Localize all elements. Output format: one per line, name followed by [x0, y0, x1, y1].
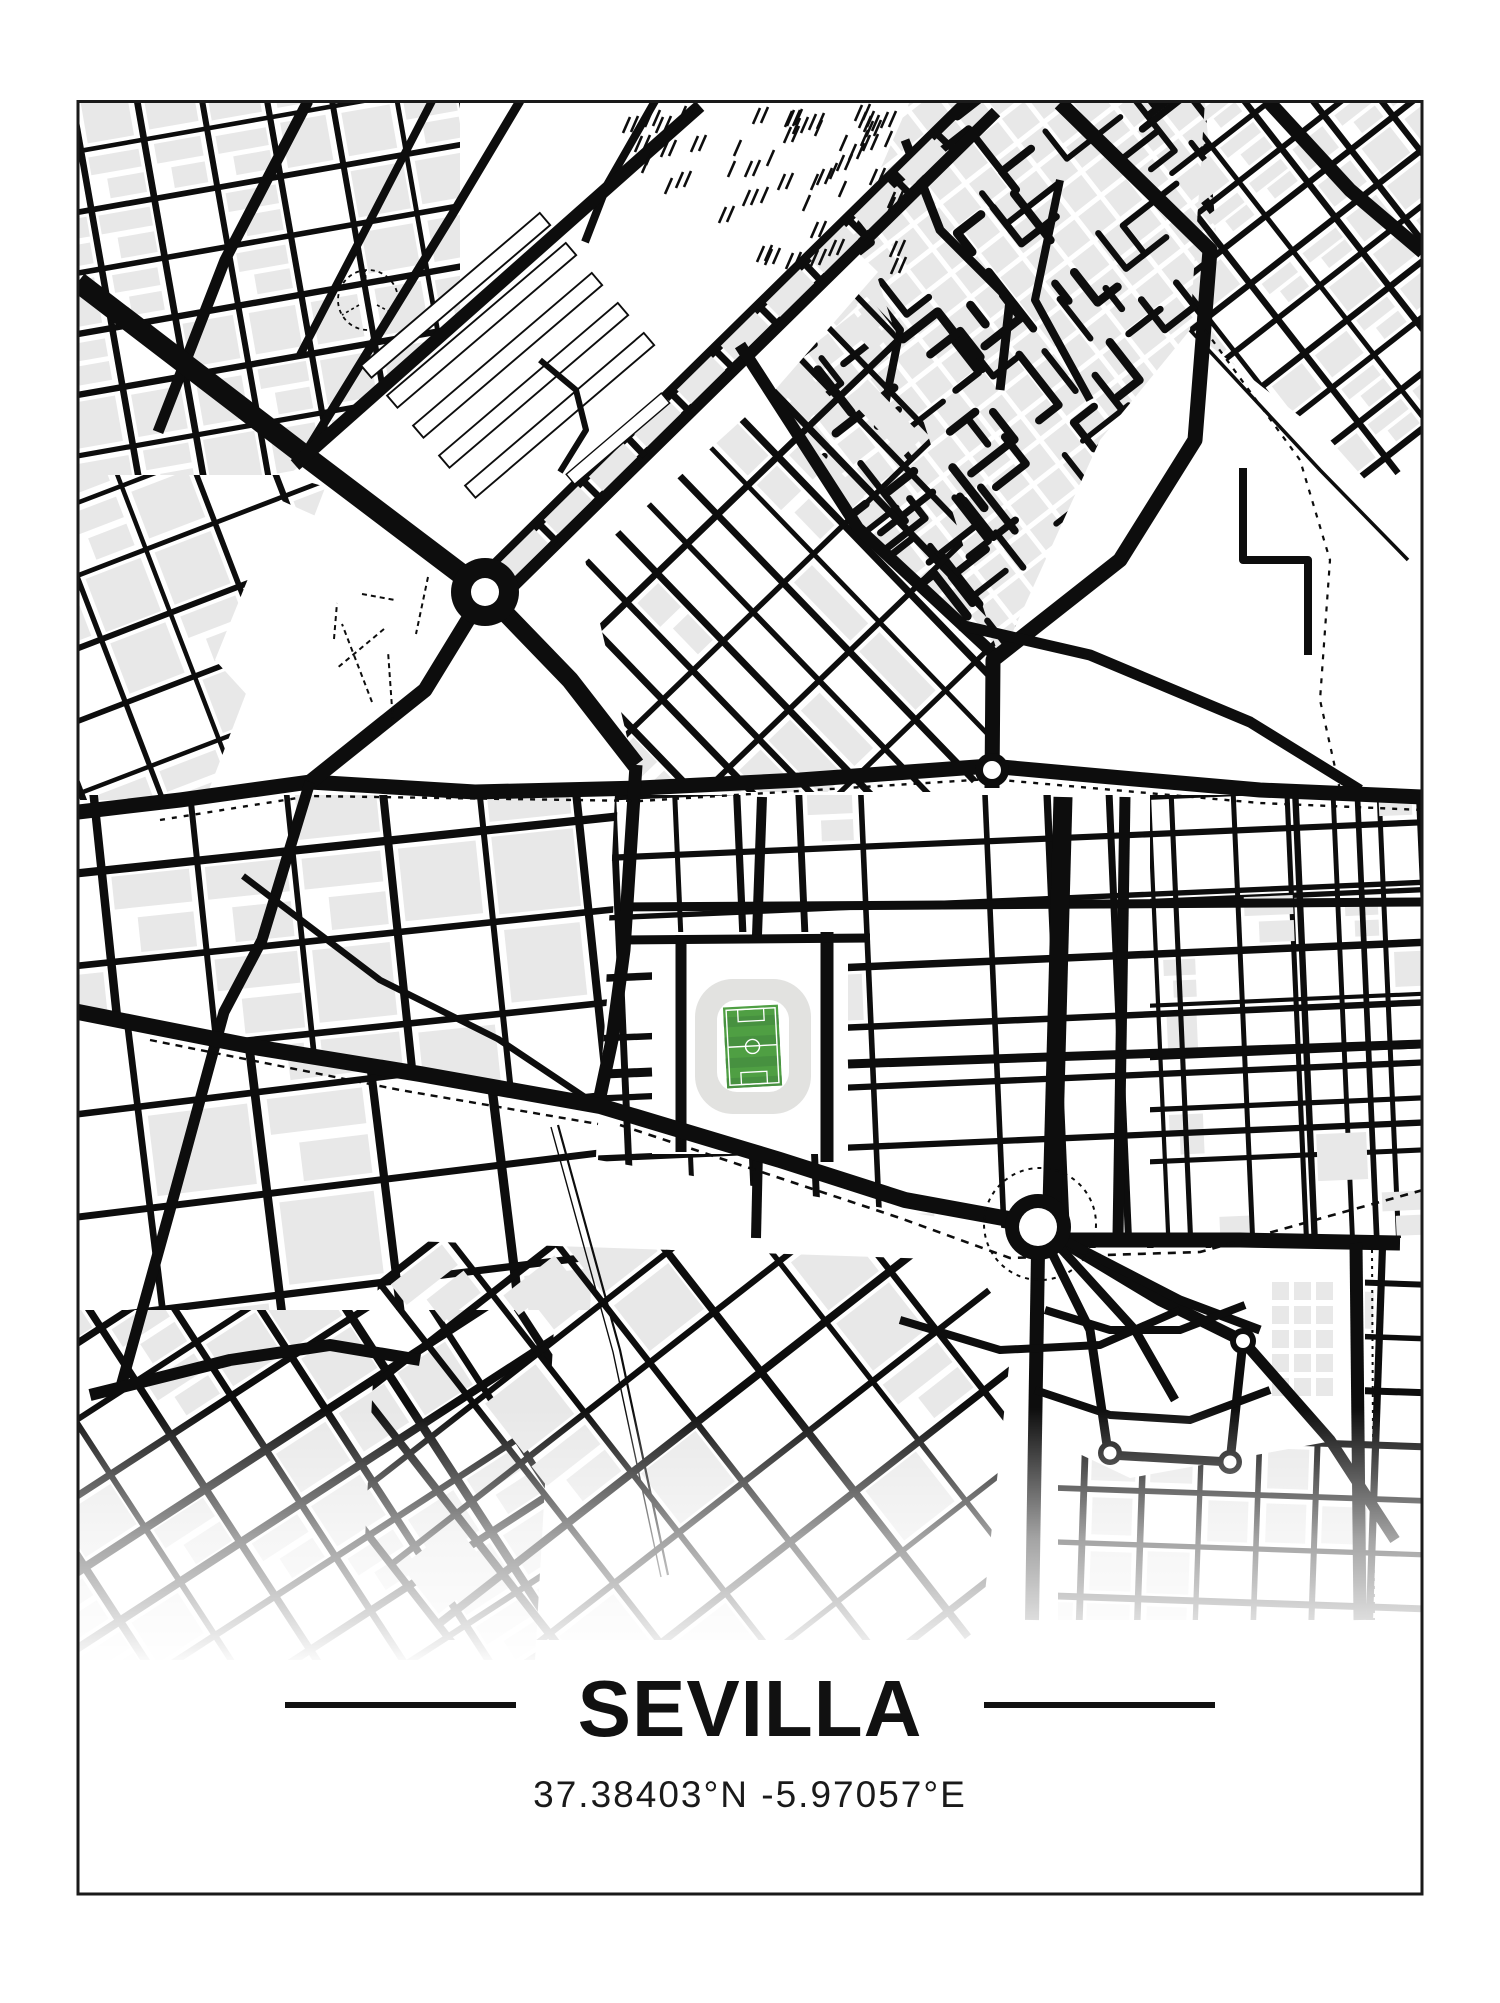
svg-text:37.38403°N -5.97057°E: 37.38403°N -5.97057°E — [533, 1774, 967, 1815]
svg-text:SEVILLA: SEVILLA — [578, 1664, 923, 1753]
